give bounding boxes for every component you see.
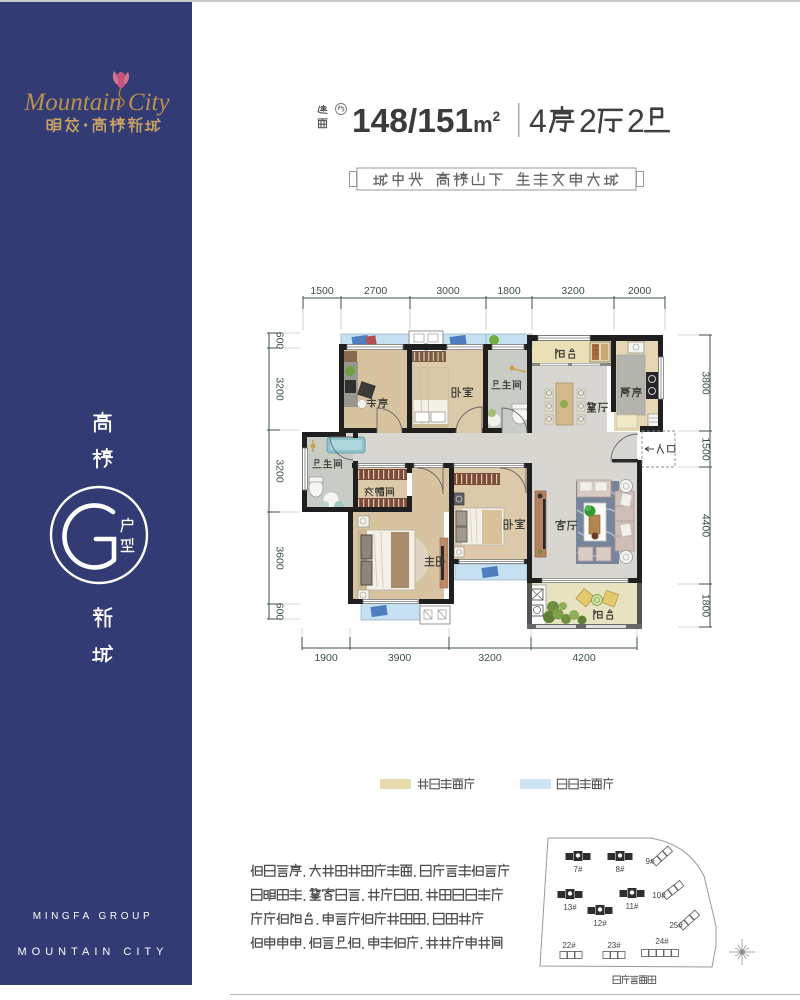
svg-text:3200: 3200 xyxy=(274,377,286,401)
svg-text:2000: 2000 xyxy=(628,285,652,297)
svg-text:4: 4 xyxy=(529,103,547,139)
svg-text:9#: 9# xyxy=(646,857,655,866)
svg-text:3200: 3200 xyxy=(561,285,585,297)
svg-text:4200: 4200 xyxy=(572,652,596,664)
svg-text:MINGFA GROUP: MINGFA GROUP xyxy=(33,911,153,922)
svg-text:2: 2 xyxy=(579,103,597,139)
svg-text:7#: 7# xyxy=(574,865,583,874)
svg-text:1800: 1800 xyxy=(497,285,521,297)
svg-text:25#: 25# xyxy=(669,921,683,930)
svg-text:3800: 3800 xyxy=(700,371,712,395)
svg-text:23#: 23# xyxy=(607,941,621,950)
svg-text:600: 600 xyxy=(274,332,286,350)
svg-text:8#: 8# xyxy=(616,865,625,874)
svg-text:1900: 1900 xyxy=(314,652,338,664)
svg-text:3900: 3900 xyxy=(388,652,412,664)
svg-text:4400: 4400 xyxy=(700,514,712,538)
svg-text:24#: 24# xyxy=(655,937,669,946)
svg-text:1500: 1500 xyxy=(700,437,712,461)
svg-text:MOUNTAIN CITY: MOUNTAIN CITY xyxy=(18,946,169,958)
svg-text:13#: 13# xyxy=(563,903,577,912)
svg-text:2700: 2700 xyxy=(364,285,388,297)
svg-text:12#: 12# xyxy=(593,919,607,928)
svg-text:3000: 3000 xyxy=(436,285,460,297)
svg-text:148/151m2: 148/151m2 xyxy=(352,103,500,140)
svg-text:3200: 3200 xyxy=(274,459,286,483)
svg-text:1500: 1500 xyxy=(310,285,334,297)
svg-text:3600: 3600 xyxy=(274,546,286,570)
svg-text:11#: 11# xyxy=(626,902,639,911)
svg-text:10#: 10# xyxy=(652,891,666,900)
svg-text:1800: 1800 xyxy=(700,594,712,618)
svg-text:2: 2 xyxy=(627,103,645,139)
svg-text:3200: 3200 xyxy=(478,652,502,664)
svg-text:600: 600 xyxy=(274,603,286,621)
svg-text:22#: 22# xyxy=(562,941,576,950)
svg-text:Mountain City: Mountain City xyxy=(23,89,170,116)
